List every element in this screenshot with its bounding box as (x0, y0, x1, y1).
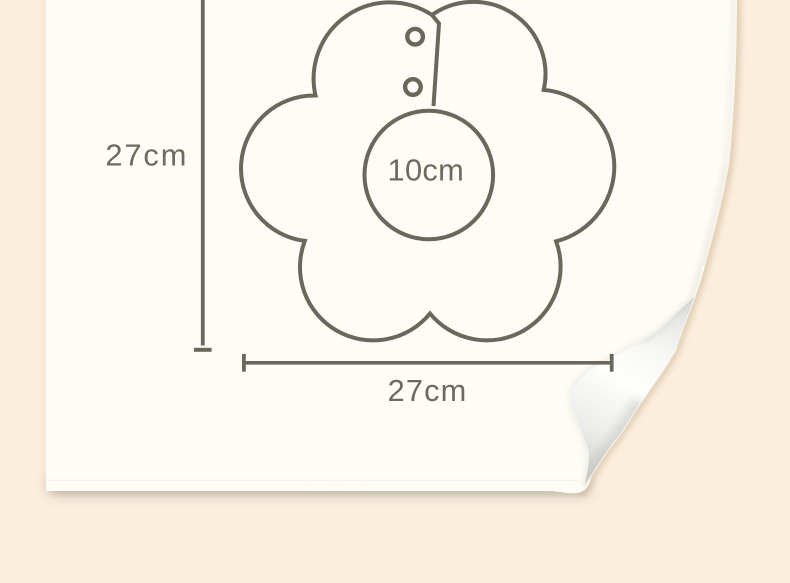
svg-text:27cm: 27cm (105, 138, 188, 173)
svg-text:10cm: 10cm (388, 153, 465, 188)
svg-text:27cm: 27cm (388, 373, 468, 408)
